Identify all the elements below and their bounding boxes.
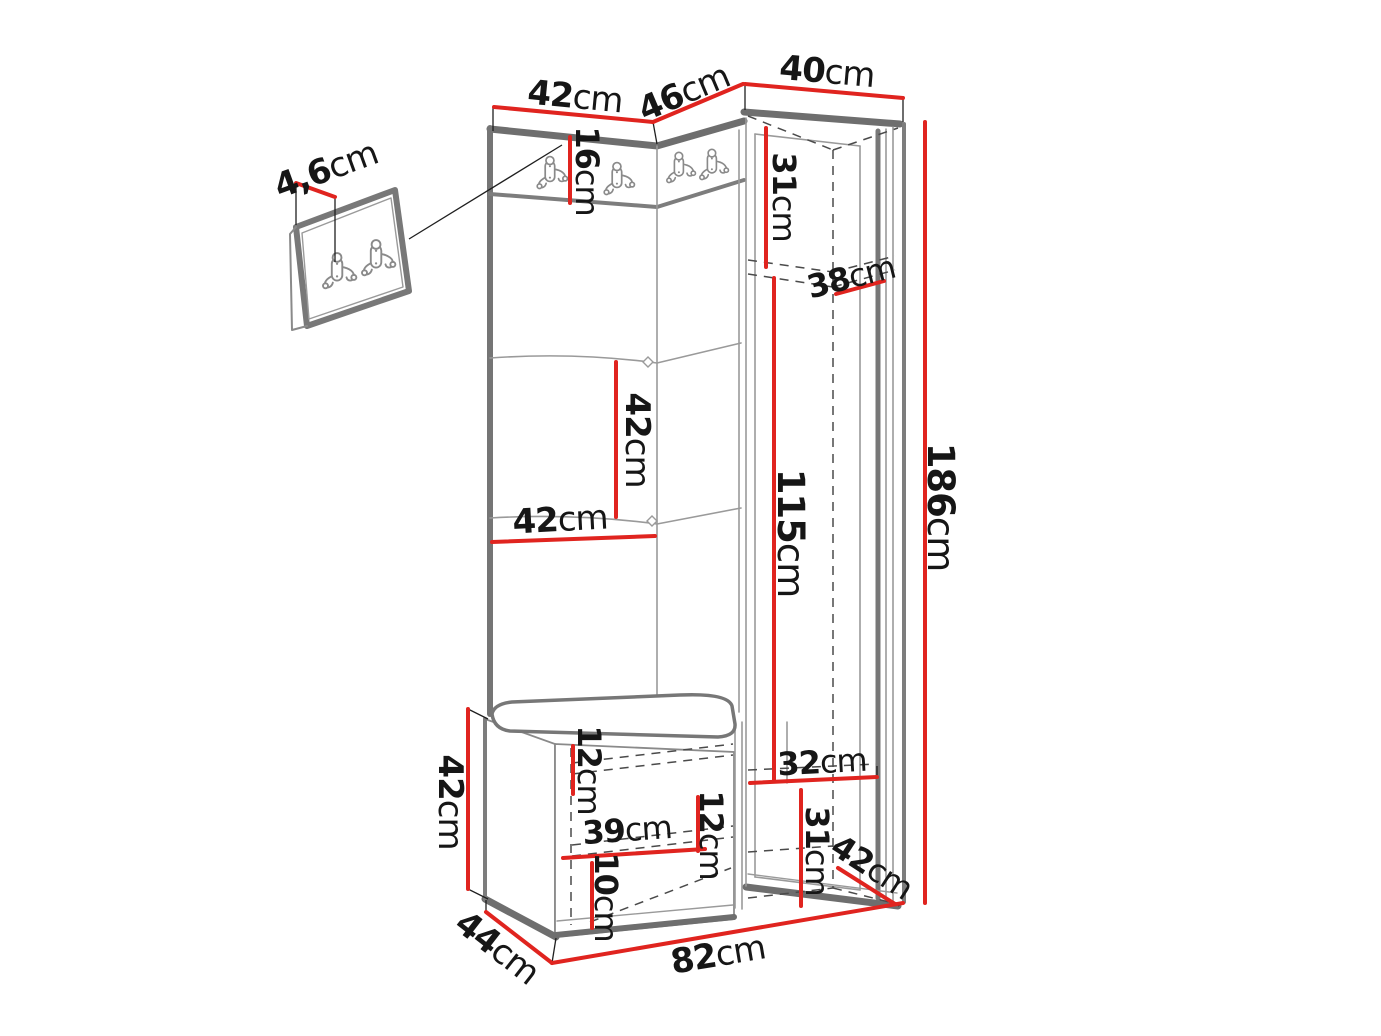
corner-panel-face: [657, 118, 744, 714]
dimension-label-top-compartment-height: 31cm: [765, 152, 803, 241]
dimension-label-wardrobe-shelf-width: 32cm: [776, 741, 867, 784]
bench-cushion: [492, 695, 735, 737]
dimension-label-hanging-space-height: 115cm: [770, 469, 813, 598]
dimension-label-bench-top-clearance: 12cm: [570, 725, 608, 814]
dimension-label-panel-square-width: 42cm: [511, 498, 608, 543]
dimension-label-left-panel-width: 42cm: [526, 73, 625, 122]
dimension-label-bench-height: 42cm: [430, 754, 470, 849]
dimension-label-bench-bottom-shelf: 10cm: [587, 852, 625, 941]
dimension-label-bench-inner-width: 39cm: [581, 808, 673, 852]
dimension-label-corner-panel-width: 46cm: [632, 56, 735, 130]
hook-panel-detail: [290, 190, 409, 330]
dimension-label-panel-thickness: 4,6cm: [269, 133, 383, 207]
dimension-label-hook-strip-height: 16cm: [568, 126, 606, 215]
dimension-label-wardrobe-width: 40cm: [778, 48, 876, 96]
dimension-label-panel-square-height: 42cm: [617, 392, 657, 487]
dimension-label-bench-right-clearance: 12cm: [692, 790, 730, 879]
dimension-label-total-width: 82cm: [668, 927, 768, 982]
dimension-label-total-height: 186cm: [920, 443, 963, 572]
dimension-diagram: 4,6cm42cm46cm40cm16cm31cm38cm42cm42cm115…: [0, 0, 1381, 1036]
